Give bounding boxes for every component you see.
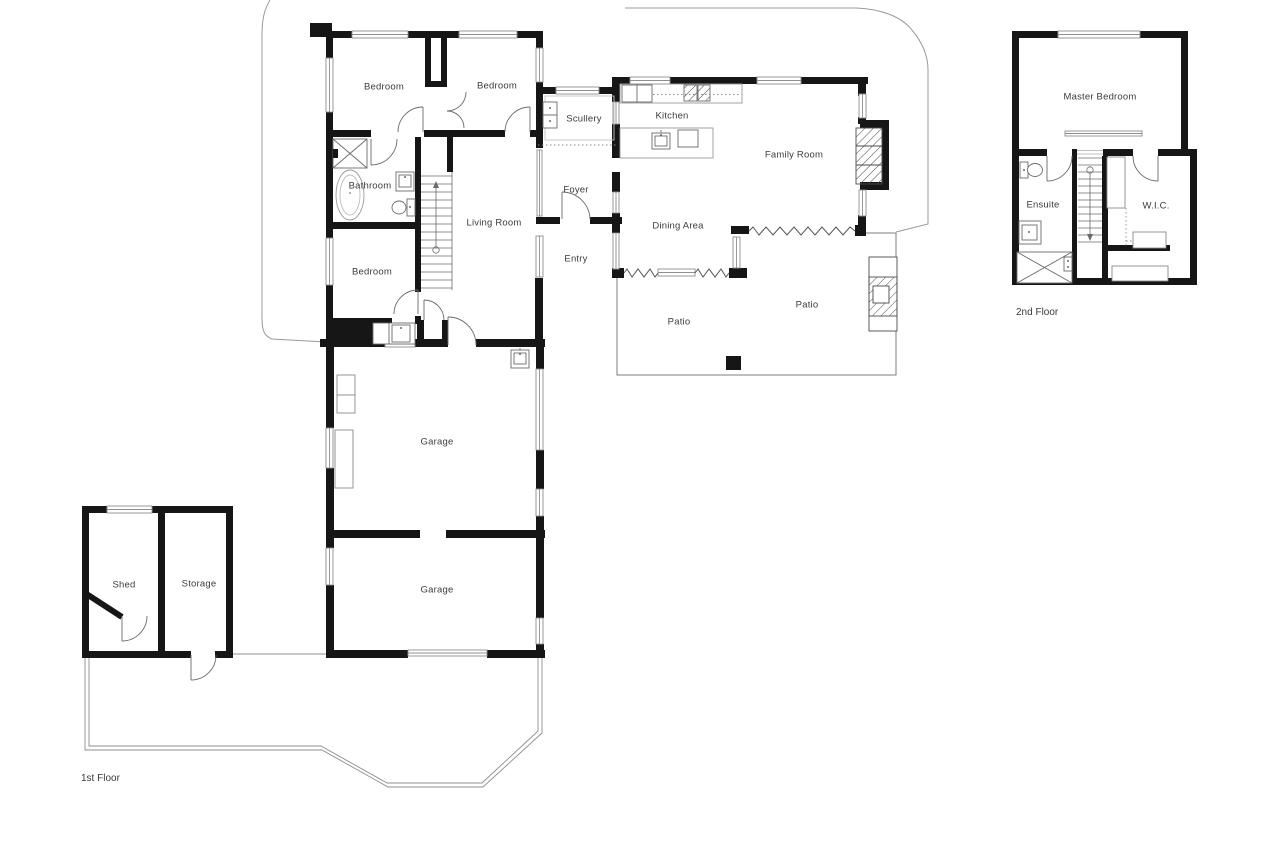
closet-bifold-doors xyxy=(447,92,466,128)
room-label-patio: Patio xyxy=(796,300,819,311)
site-boundary-lines xyxy=(262,0,928,342)
floor-label-1st-floor: 1st Floor xyxy=(81,773,120,784)
foyer-door xyxy=(562,192,590,219)
shed-door xyxy=(122,616,147,641)
stairs-second-floor xyxy=(1077,151,1103,243)
kitchen-counter xyxy=(620,84,742,103)
room-label-master-bedroom: Master Bedroom xyxy=(1063,92,1136,103)
wic-shelving xyxy=(1107,157,1168,281)
room-label-foyer: Foyer xyxy=(563,185,588,196)
ensuite-door xyxy=(1047,156,1072,181)
walls-first-floor xyxy=(82,23,889,658)
floor-label-2nd-floor: 2nd Floor xyxy=(1016,307,1058,318)
room-label-bedroom: Bedroom xyxy=(364,82,404,93)
door-swings xyxy=(122,92,1158,680)
shed-diagonal-wall xyxy=(85,593,122,617)
room-label-garage: Garage xyxy=(421,437,454,448)
room-label-entry: Entry xyxy=(564,254,587,265)
bedroom1-door xyxy=(398,107,423,132)
garage-utility-sink xyxy=(511,348,529,368)
room-label-family-room: Family Room xyxy=(765,150,823,161)
bathtub xyxy=(336,170,364,220)
room-label-storage: Storage xyxy=(182,579,217,590)
bedroom3-door xyxy=(394,290,418,314)
bathroom-door xyxy=(371,139,397,165)
room-label-scullery: Scullery xyxy=(566,114,601,125)
room-label-shed: Shed xyxy=(113,580,136,591)
room-label-garage: Garage xyxy=(421,585,454,596)
bedroom2-door xyxy=(505,107,530,132)
family-room-fireplace xyxy=(856,128,882,184)
fixtures-second-floor xyxy=(1017,157,1168,283)
laundry-counter xyxy=(373,323,415,344)
stairs-first-floor xyxy=(421,172,452,290)
floor-plan-drawing xyxy=(0,0,1280,853)
room-label-bedroom: Bedroom xyxy=(477,81,517,92)
toilet xyxy=(392,199,415,216)
ensuite-vanity xyxy=(1019,221,1041,244)
kitchen-island xyxy=(620,128,713,158)
storage-door xyxy=(191,655,216,680)
ensuite-toilet xyxy=(1020,162,1043,178)
room-label-w-i-c: W.I.C. xyxy=(1142,201,1169,212)
room-label-dining-area: Dining Area xyxy=(652,221,703,232)
bathroom-sink xyxy=(396,172,414,191)
outdoor-fireplace xyxy=(869,257,897,331)
room-label-ensuite: Ensuite xyxy=(1026,200,1059,211)
walls-second-floor xyxy=(1012,31,1197,285)
room-label-living-room: Living Room xyxy=(466,218,521,229)
room-label-bathroom: Bathroom xyxy=(349,181,392,192)
patio-firepit xyxy=(726,356,741,370)
room-label-bedroom: Bedroom xyxy=(352,267,392,278)
garage-entry-door xyxy=(448,317,476,345)
shower xyxy=(333,139,367,168)
room-label-kitchen: Kitchen xyxy=(655,111,688,122)
room-label-patio: Patio xyxy=(668,317,691,328)
garage-shelves xyxy=(335,375,355,488)
floor-plan-page: BedroomBedroomSculleryKitchenFamily Room… xyxy=(0,0,1280,853)
wic-door xyxy=(1133,156,1158,181)
ensuite-shower xyxy=(1017,252,1072,283)
deck-outline xyxy=(85,654,542,787)
patio-outline xyxy=(617,233,896,375)
hall-closet-door xyxy=(424,300,444,320)
